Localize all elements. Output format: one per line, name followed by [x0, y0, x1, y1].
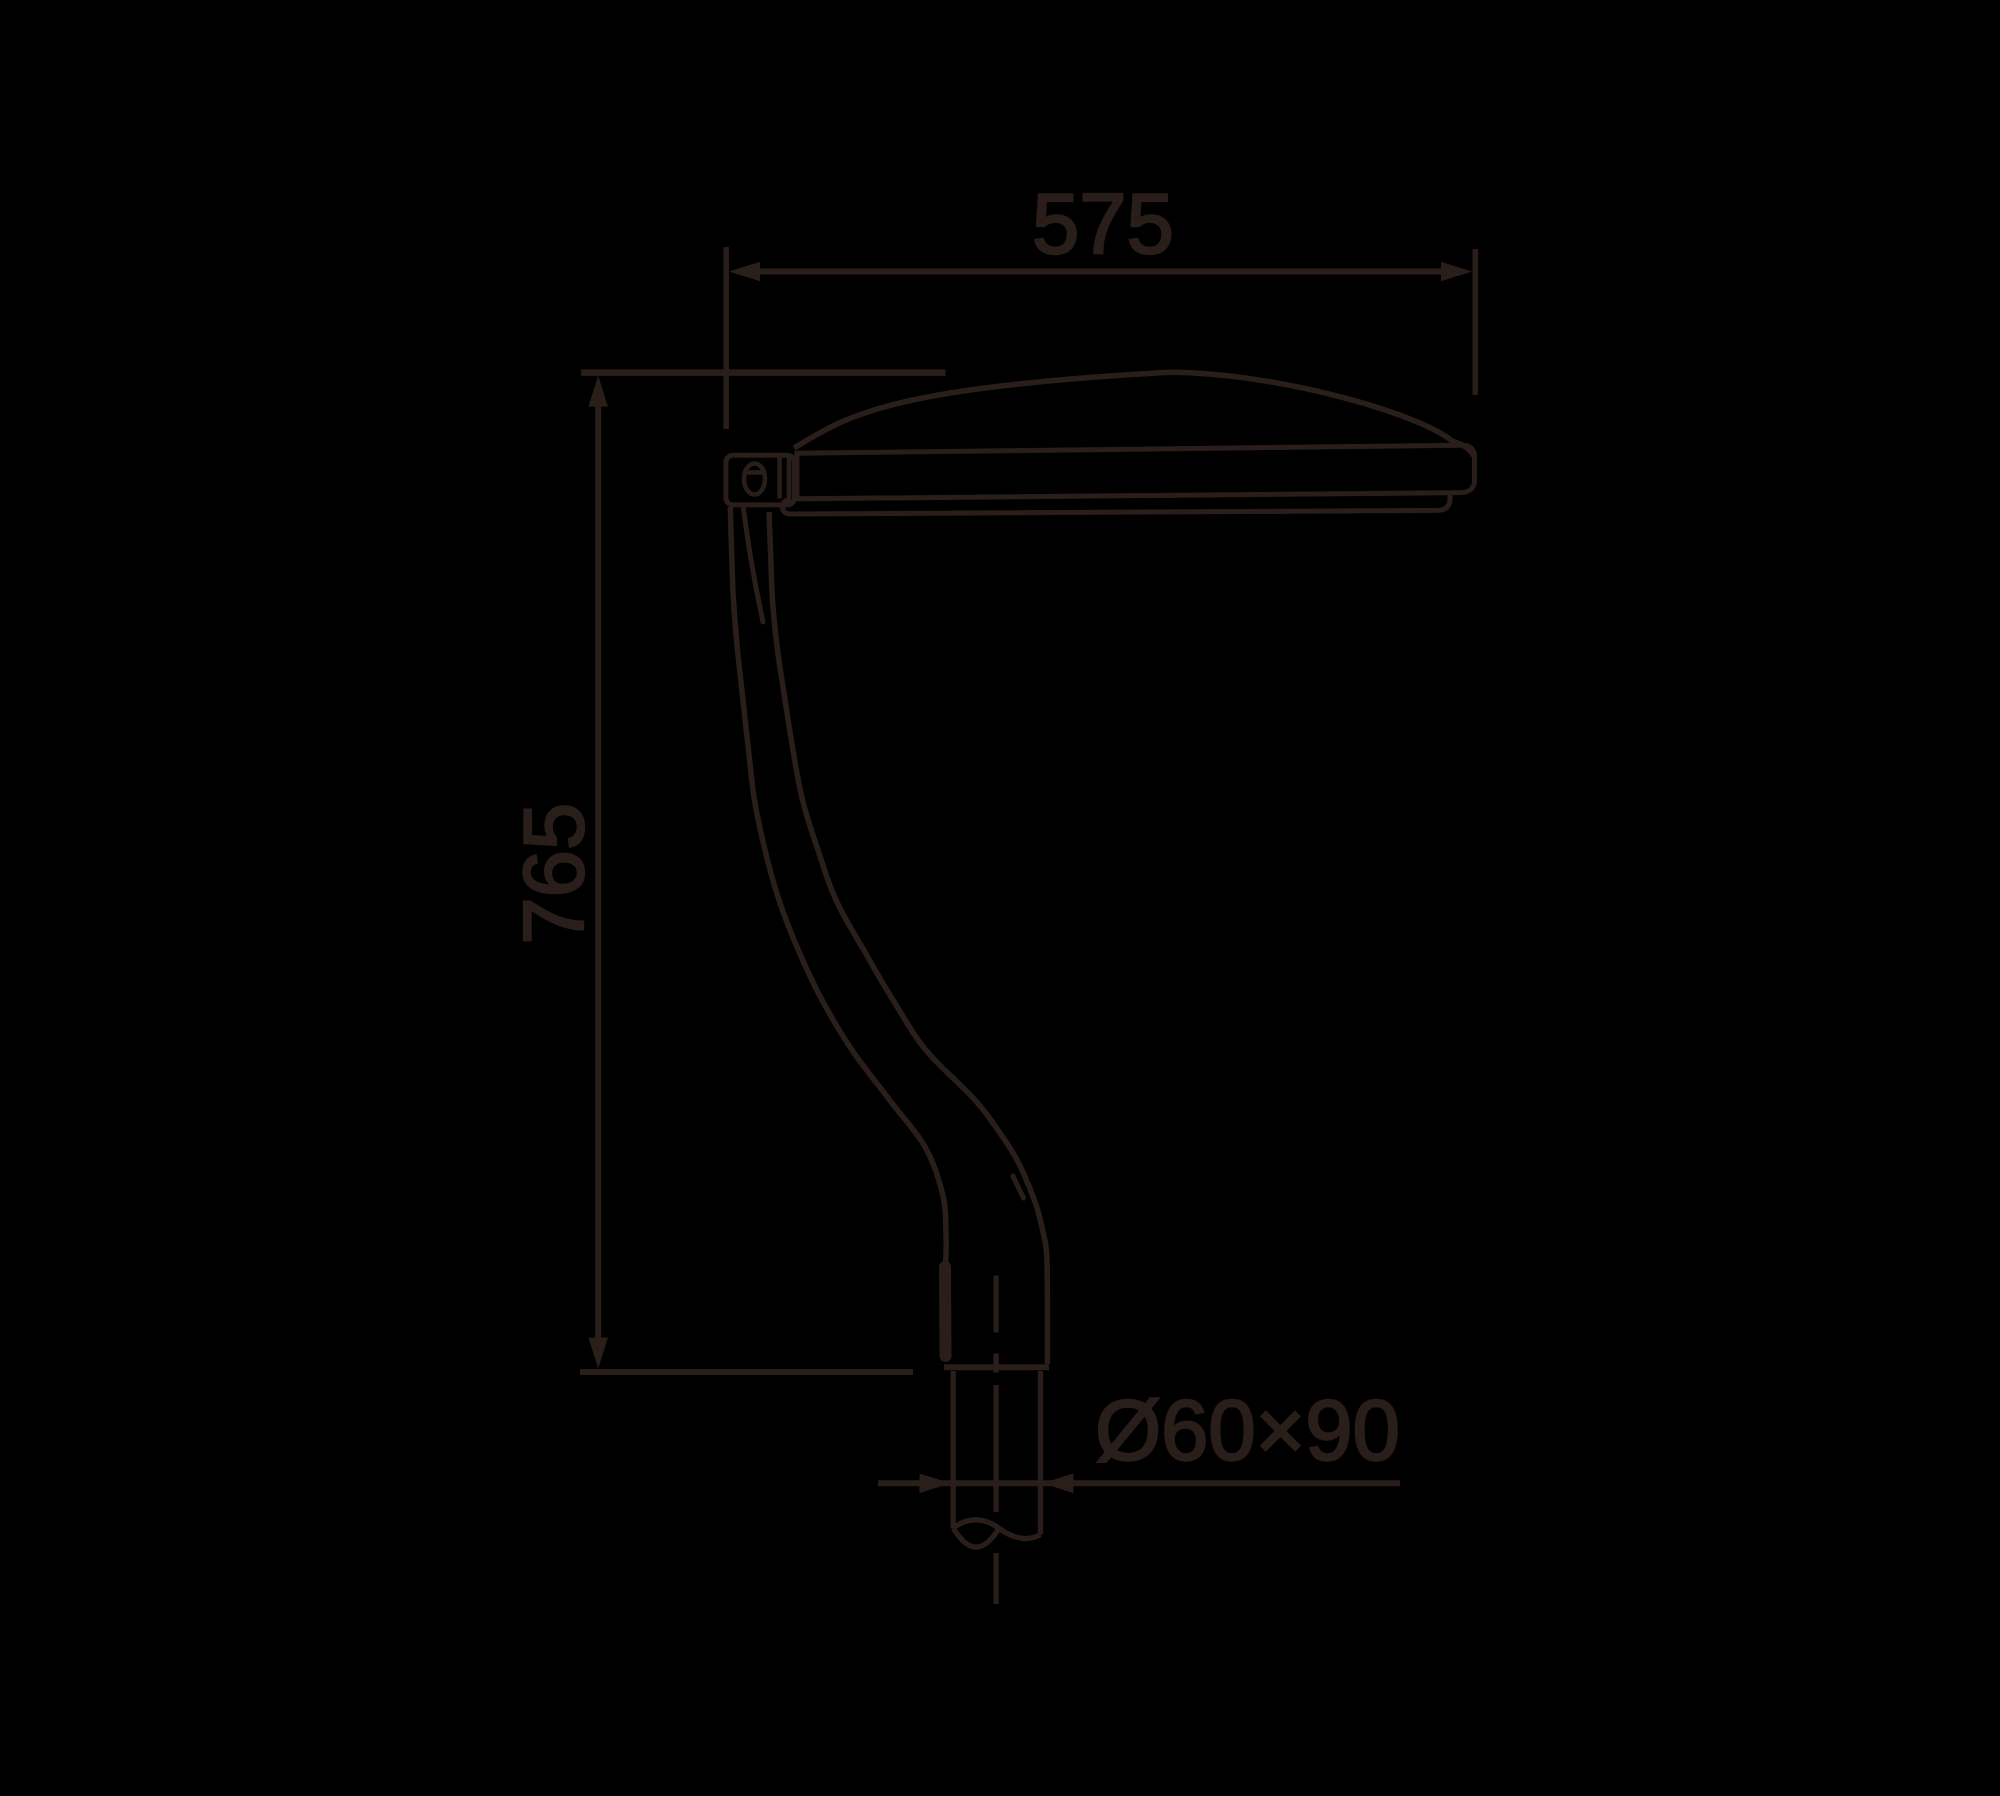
svg-text:765: 765 [507, 803, 602, 945]
svg-text:Ø60×90: Ø60×90 [1095, 1383, 1400, 1478]
svg-text:575: 575 [1032, 177, 1174, 272]
